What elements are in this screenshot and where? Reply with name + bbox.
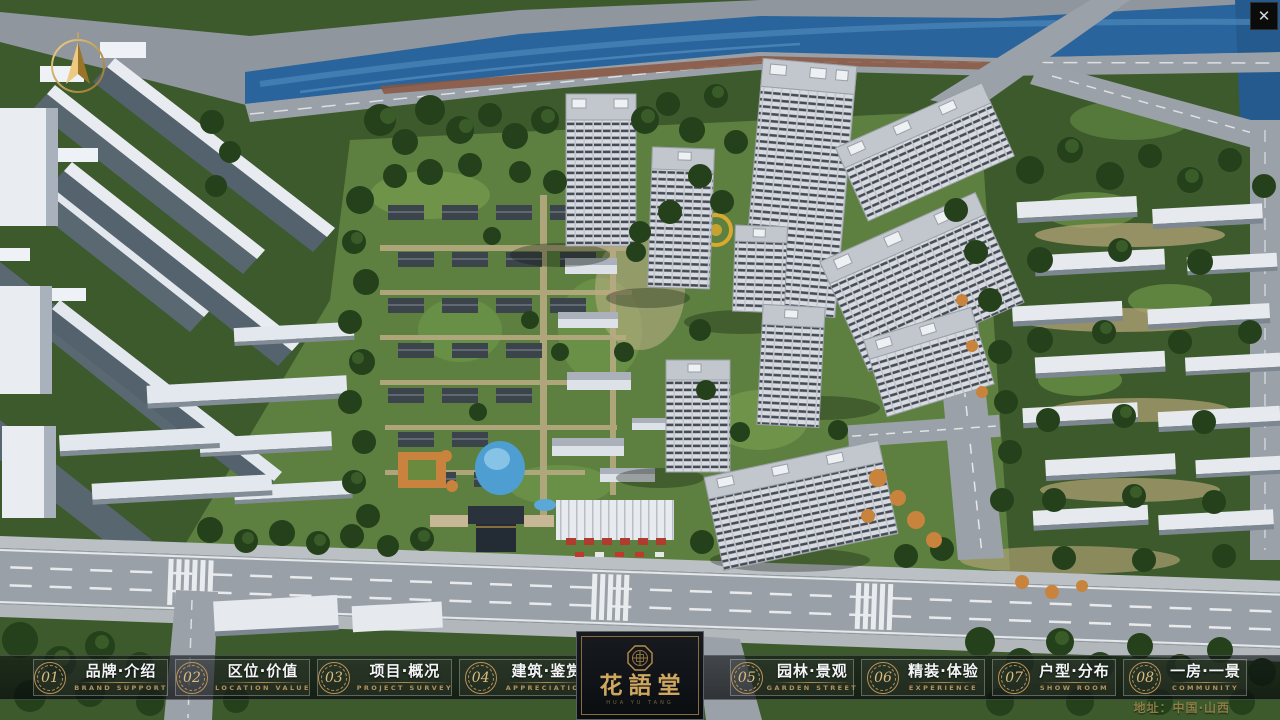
nav-item-subtitle: EXPERIENCE — [909, 684, 978, 692]
site-map-render — [0, 0, 1280, 720]
gold-divider — [1170, 682, 1241, 683]
nav-item-location[interactable]: 02 区位·价值 LOCATION VALUE — [175, 659, 310, 696]
nav-item-subtitle: LOCATION VALUE — [215, 684, 311, 692]
nav-item-views[interactable]: 08 一房·一景 COMMUNITY — [1123, 659, 1247, 696]
nav-number-badge: 03 — [318, 662, 350, 694]
nav-number-badge: 06 — [867, 662, 899, 694]
nav-item-garden[interactable]: 05 园林·景观 GARDEN STREET — [730, 659, 854, 696]
brand-name: 花語堂 — [594, 674, 687, 697]
nav-number-badge: 08 — [1129, 662, 1161, 694]
nav-item-floorplan[interactable]: 07 户型·分布 SHOW ROOM — [992, 659, 1116, 696]
sales-app-window: ✕ 01 品牌·介绍 BRAND SUPPORT 02 区位·价值 LOCATI… — [0, 0, 1280, 720]
nav-item-subtitle: COMMUNITY — [1172, 684, 1239, 692]
nav-number-badge: 07 — [998, 662, 1030, 694]
gold-divider — [908, 682, 979, 683]
nav-item-title: 精装·体验 — [908, 663, 979, 680]
nav-item-title: 园林·景观 — [777, 663, 848, 680]
nav-number-badge: 04 — [465, 662, 497, 694]
nav-number-badge: 02 — [176, 662, 208, 694]
nav-item-decoration[interactable]: 06 精装·体验 EXPERIENCE — [861, 659, 985, 696]
nav-item-subtitle: SHOW ROOM — [1040, 684, 1109, 692]
nav-group-right: 05 园林·景观 GARDEN STREET 06 精装·体验 EXPERIEN… — [730, 659, 1247, 696]
gold-divider — [772, 682, 853, 683]
brand-logo-panel[interactable]: 花語堂 HUA YU TANG — [576, 631, 704, 720]
nav-item-title: 区位·价值 — [228, 663, 299, 680]
nav-number-badge: 01 — [34, 662, 66, 694]
nav-item-brand[interactable]: 01 品牌·介绍 BRAND SUPPORT — [33, 659, 168, 696]
gold-divider — [1039, 682, 1110, 683]
nav-group-left: 01 品牌·介绍 BRAND SUPPORT 02 区位·价值 LOCATION… — [33, 659, 594, 696]
close-icon: ✕ — [1258, 9, 1271, 24]
nav-item-architecture[interactable]: 04 建筑·鉴赏 APPRECIATION — [459, 659, 594, 696]
nav-item-title: 品牌·介绍 — [86, 663, 157, 680]
close-button[interactable]: ✕ — [1250, 2, 1278, 30]
nav-number-badge: 05 — [731, 662, 763, 694]
brand-caption: HUA YU TANG — [606, 700, 673, 706]
nav-item-title: 户型·分布 — [1039, 663, 1110, 680]
nav-item-subtitle: BRAND SUPPORT — [74, 684, 167, 692]
nav-item-project[interactable]: 03 项目·概况 PROJECT SURVEY — [317, 659, 452, 696]
gold-divider — [359, 682, 451, 683]
nav-item-subtitle: PROJECT SURVEY — [357, 684, 453, 692]
gold-divider — [217, 682, 309, 683]
gold-divider — [75, 682, 167, 683]
nav-item-title: 项目·概况 — [370, 663, 441, 680]
nav-item-title: 建筑·鉴赏 — [512, 663, 583, 680]
compass — [48, 26, 108, 98]
brand-seal-icon — [627, 645, 653, 671]
project-address: 地址：中国·山西 — [1133, 699, 1230, 716]
nav-item-subtitle: GARDEN STREET — [767, 684, 859, 692]
nav-item-title: 一房·一景 — [1170, 663, 1241, 680]
